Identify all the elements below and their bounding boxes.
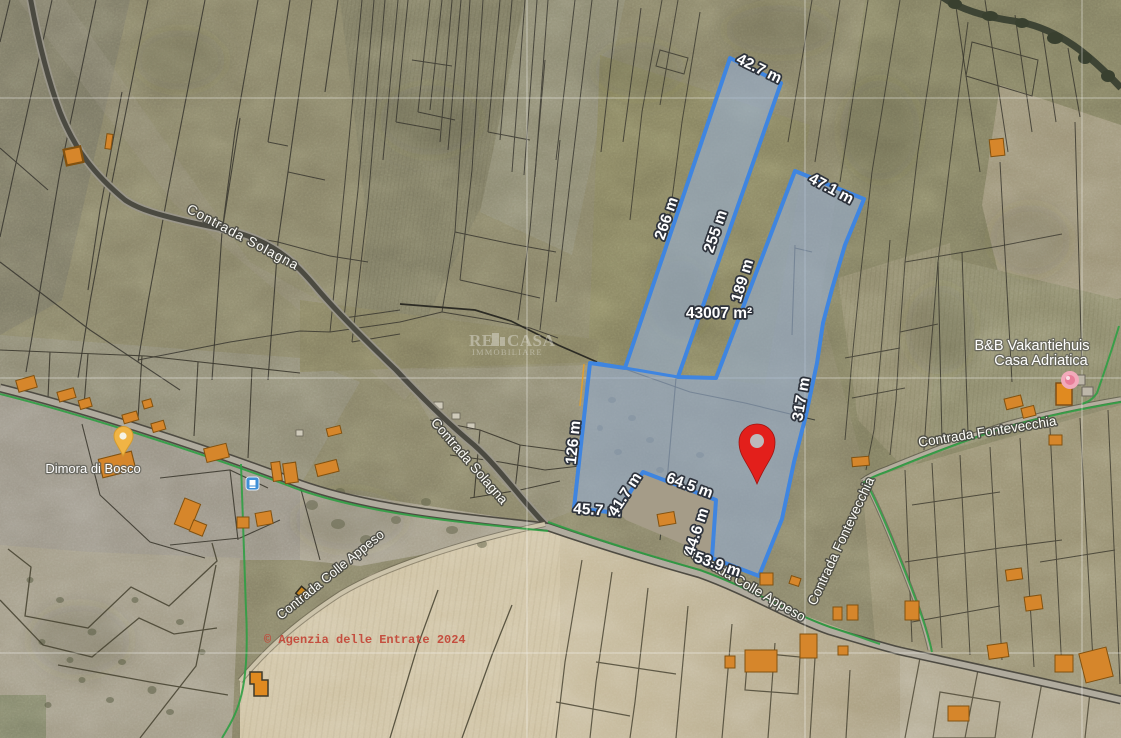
svg-text:43007 m²: 43007 m² bbox=[686, 305, 752, 322]
svg-text:B&B Vakantiehuis: B&B Vakantiehuis bbox=[975, 338, 1090, 354]
svg-text:IMMOBILIARE: IMMOBILIARE bbox=[472, 347, 543, 357]
svg-text:Casa Adriatica: Casa Adriatica bbox=[994, 353, 1088, 369]
svg-text:Dimora di Bosco: Dimora di Bosco bbox=[45, 461, 140, 476]
svg-text:© Agenzia delle Entrate 2024: © Agenzia delle Entrate 2024 bbox=[264, 633, 466, 647]
